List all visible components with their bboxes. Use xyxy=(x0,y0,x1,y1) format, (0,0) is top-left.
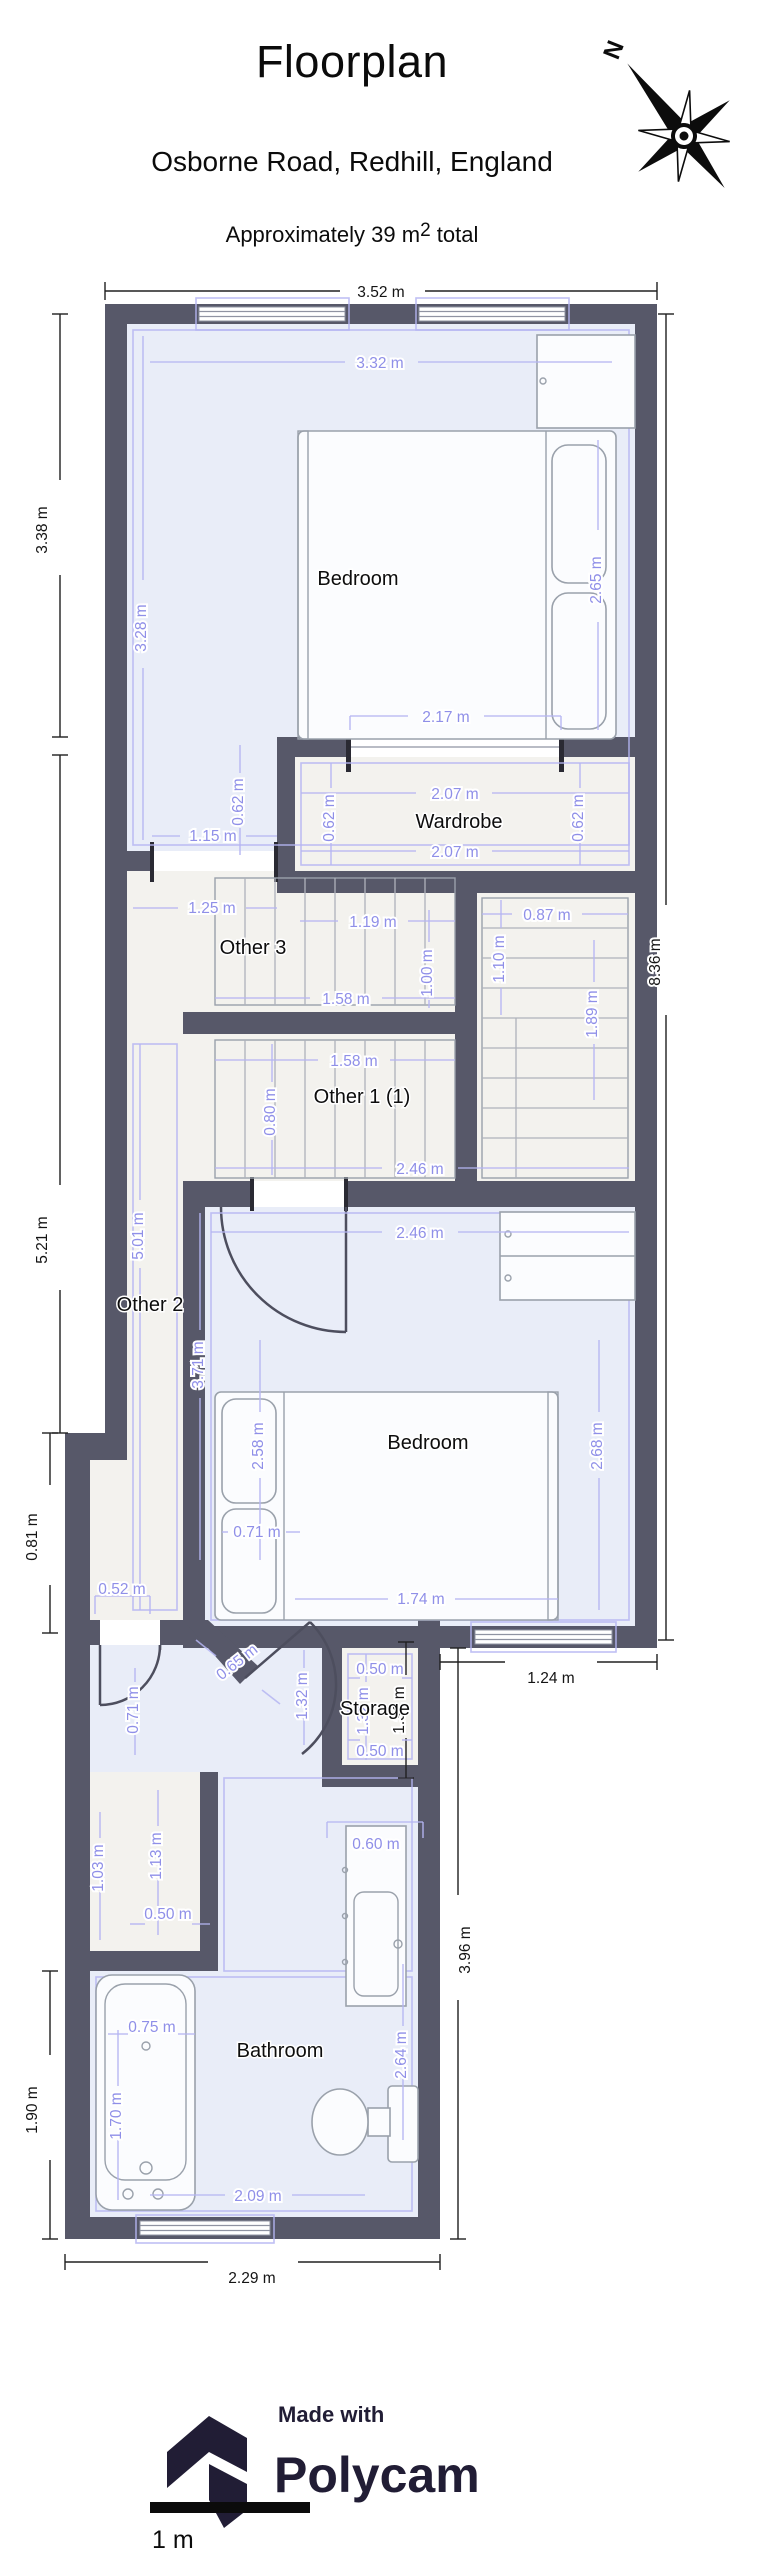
dimension-label: 0.80 m xyxy=(262,1088,279,1135)
dimension-label: 2.64 m xyxy=(393,2031,410,2078)
dimension-label: 1.00 m xyxy=(419,949,436,996)
floorplan-canvas: N xyxy=(0,0,764,2560)
dimension-label: 0.62 m xyxy=(230,778,247,825)
dimension-label: 0.71 m xyxy=(125,1686,142,1733)
dimension-label: 1.74 m xyxy=(397,1591,444,1608)
other2-floor xyxy=(127,1012,183,1620)
dimension-label: 1.90 m xyxy=(24,2086,41,2133)
dimension-label: 2.07 m xyxy=(431,786,478,803)
dimension-label: 3.28 m xyxy=(133,604,150,651)
dimension-label: 5.01 m xyxy=(130,1212,147,1259)
dimension-label: 2.17 m xyxy=(422,709,469,726)
dimension-label: 2.46 m xyxy=(396,1161,443,1178)
window-icon xyxy=(475,1630,612,1644)
compass-icon: N xyxy=(555,0,764,228)
dimension-label: 1.70 m xyxy=(108,2092,125,2139)
dimension-label: 5.21 m xyxy=(34,1216,51,1263)
dimension-label: 3.71 m xyxy=(190,1341,207,1388)
dimension-label: 2.46 m xyxy=(396,1225,443,1242)
dimension-label: 0.50 m xyxy=(356,1743,403,1760)
dimension-label: 0.87 m xyxy=(523,907,570,924)
made-with-label: Made with xyxy=(278,2402,384,2427)
dimension-label: 1.32 m xyxy=(294,1672,311,1719)
room-label-bedroom1: Bedroom xyxy=(317,568,398,590)
dimension-label: 2.58 m xyxy=(250,1422,267,1469)
dimension-label: 1.15 m xyxy=(189,828,236,845)
room-label-storage: Storage xyxy=(340,1698,410,1720)
window-icon xyxy=(140,2221,270,2235)
dimension-label: 2.68 m xyxy=(589,1422,606,1469)
bathroom-floor-upper xyxy=(218,1772,322,1971)
nightstand-icon xyxy=(537,335,635,428)
dimension-label: 2.29 m xyxy=(228,2270,275,2287)
dimension-label: 0.60 m xyxy=(352,1836,399,1853)
dimension-label: 1.24 m xyxy=(527,1670,574,1687)
room-label-other3: Other 3 xyxy=(220,937,287,959)
dimension-label: 3.38 m xyxy=(34,506,51,553)
dimension-label: 0.52 m xyxy=(98,1581,145,1598)
dimension-label: 0.62 m xyxy=(570,794,587,841)
compass-north-label: N xyxy=(598,37,630,63)
scale-bar-label: 1 m xyxy=(152,2526,194,2554)
dimension-label: 1.58 m xyxy=(330,1053,377,1070)
room-label-other2: Other 2 xyxy=(117,1294,184,1316)
dimension-label: 1.19 m xyxy=(349,914,396,931)
brand-label: Polycam xyxy=(274,2447,480,2503)
dimension-label: 2.09 m xyxy=(234,2188,281,2205)
dimension-label: 1.13 m xyxy=(148,1832,165,1879)
dimension-label: 1.58 m xyxy=(322,991,369,1008)
dimension-label: 0.50 m xyxy=(144,1906,191,1923)
dimension-label: 3.32 m xyxy=(356,355,403,372)
dimension-label: 0.75 m xyxy=(128,2019,175,2036)
dimension-label: 2.07 m xyxy=(431,844,478,861)
dimension-label: 0.81 m xyxy=(24,1513,41,1560)
dimension-label: 1.10 m xyxy=(491,935,508,982)
dimension-label: 8.36 m xyxy=(647,938,664,985)
dimension-label: 1.03 m xyxy=(90,1844,107,1891)
dresser-icon xyxy=(500,1212,635,1300)
dimension-label: 0.50 m xyxy=(356,1661,403,1678)
dimension-label: 2.65 m xyxy=(588,556,605,603)
window-icon xyxy=(199,307,345,321)
room-label-bedroom2: Bedroom xyxy=(387,1432,468,1454)
window-icon xyxy=(419,307,565,321)
dimension-label: 1.89 m xyxy=(584,990,601,1037)
dimension-label: 0.71 m xyxy=(233,1524,280,1541)
room-label-wardrobe: Wardrobe xyxy=(415,811,502,833)
vanity-sink-icon xyxy=(343,1826,407,2006)
dimension-label: 3.52 m xyxy=(357,284,404,301)
room-label-bathroom: Bathroom xyxy=(237,2040,324,2062)
scale-bar: 1 m xyxy=(150,2502,310,2554)
dimension-label: 1.25 m xyxy=(188,900,235,917)
dimension-label: 3.96 m xyxy=(457,1926,474,1973)
room-label-other1: Other 1 (1) xyxy=(314,1086,411,1108)
dimension-label: 0.62 m xyxy=(321,794,338,841)
